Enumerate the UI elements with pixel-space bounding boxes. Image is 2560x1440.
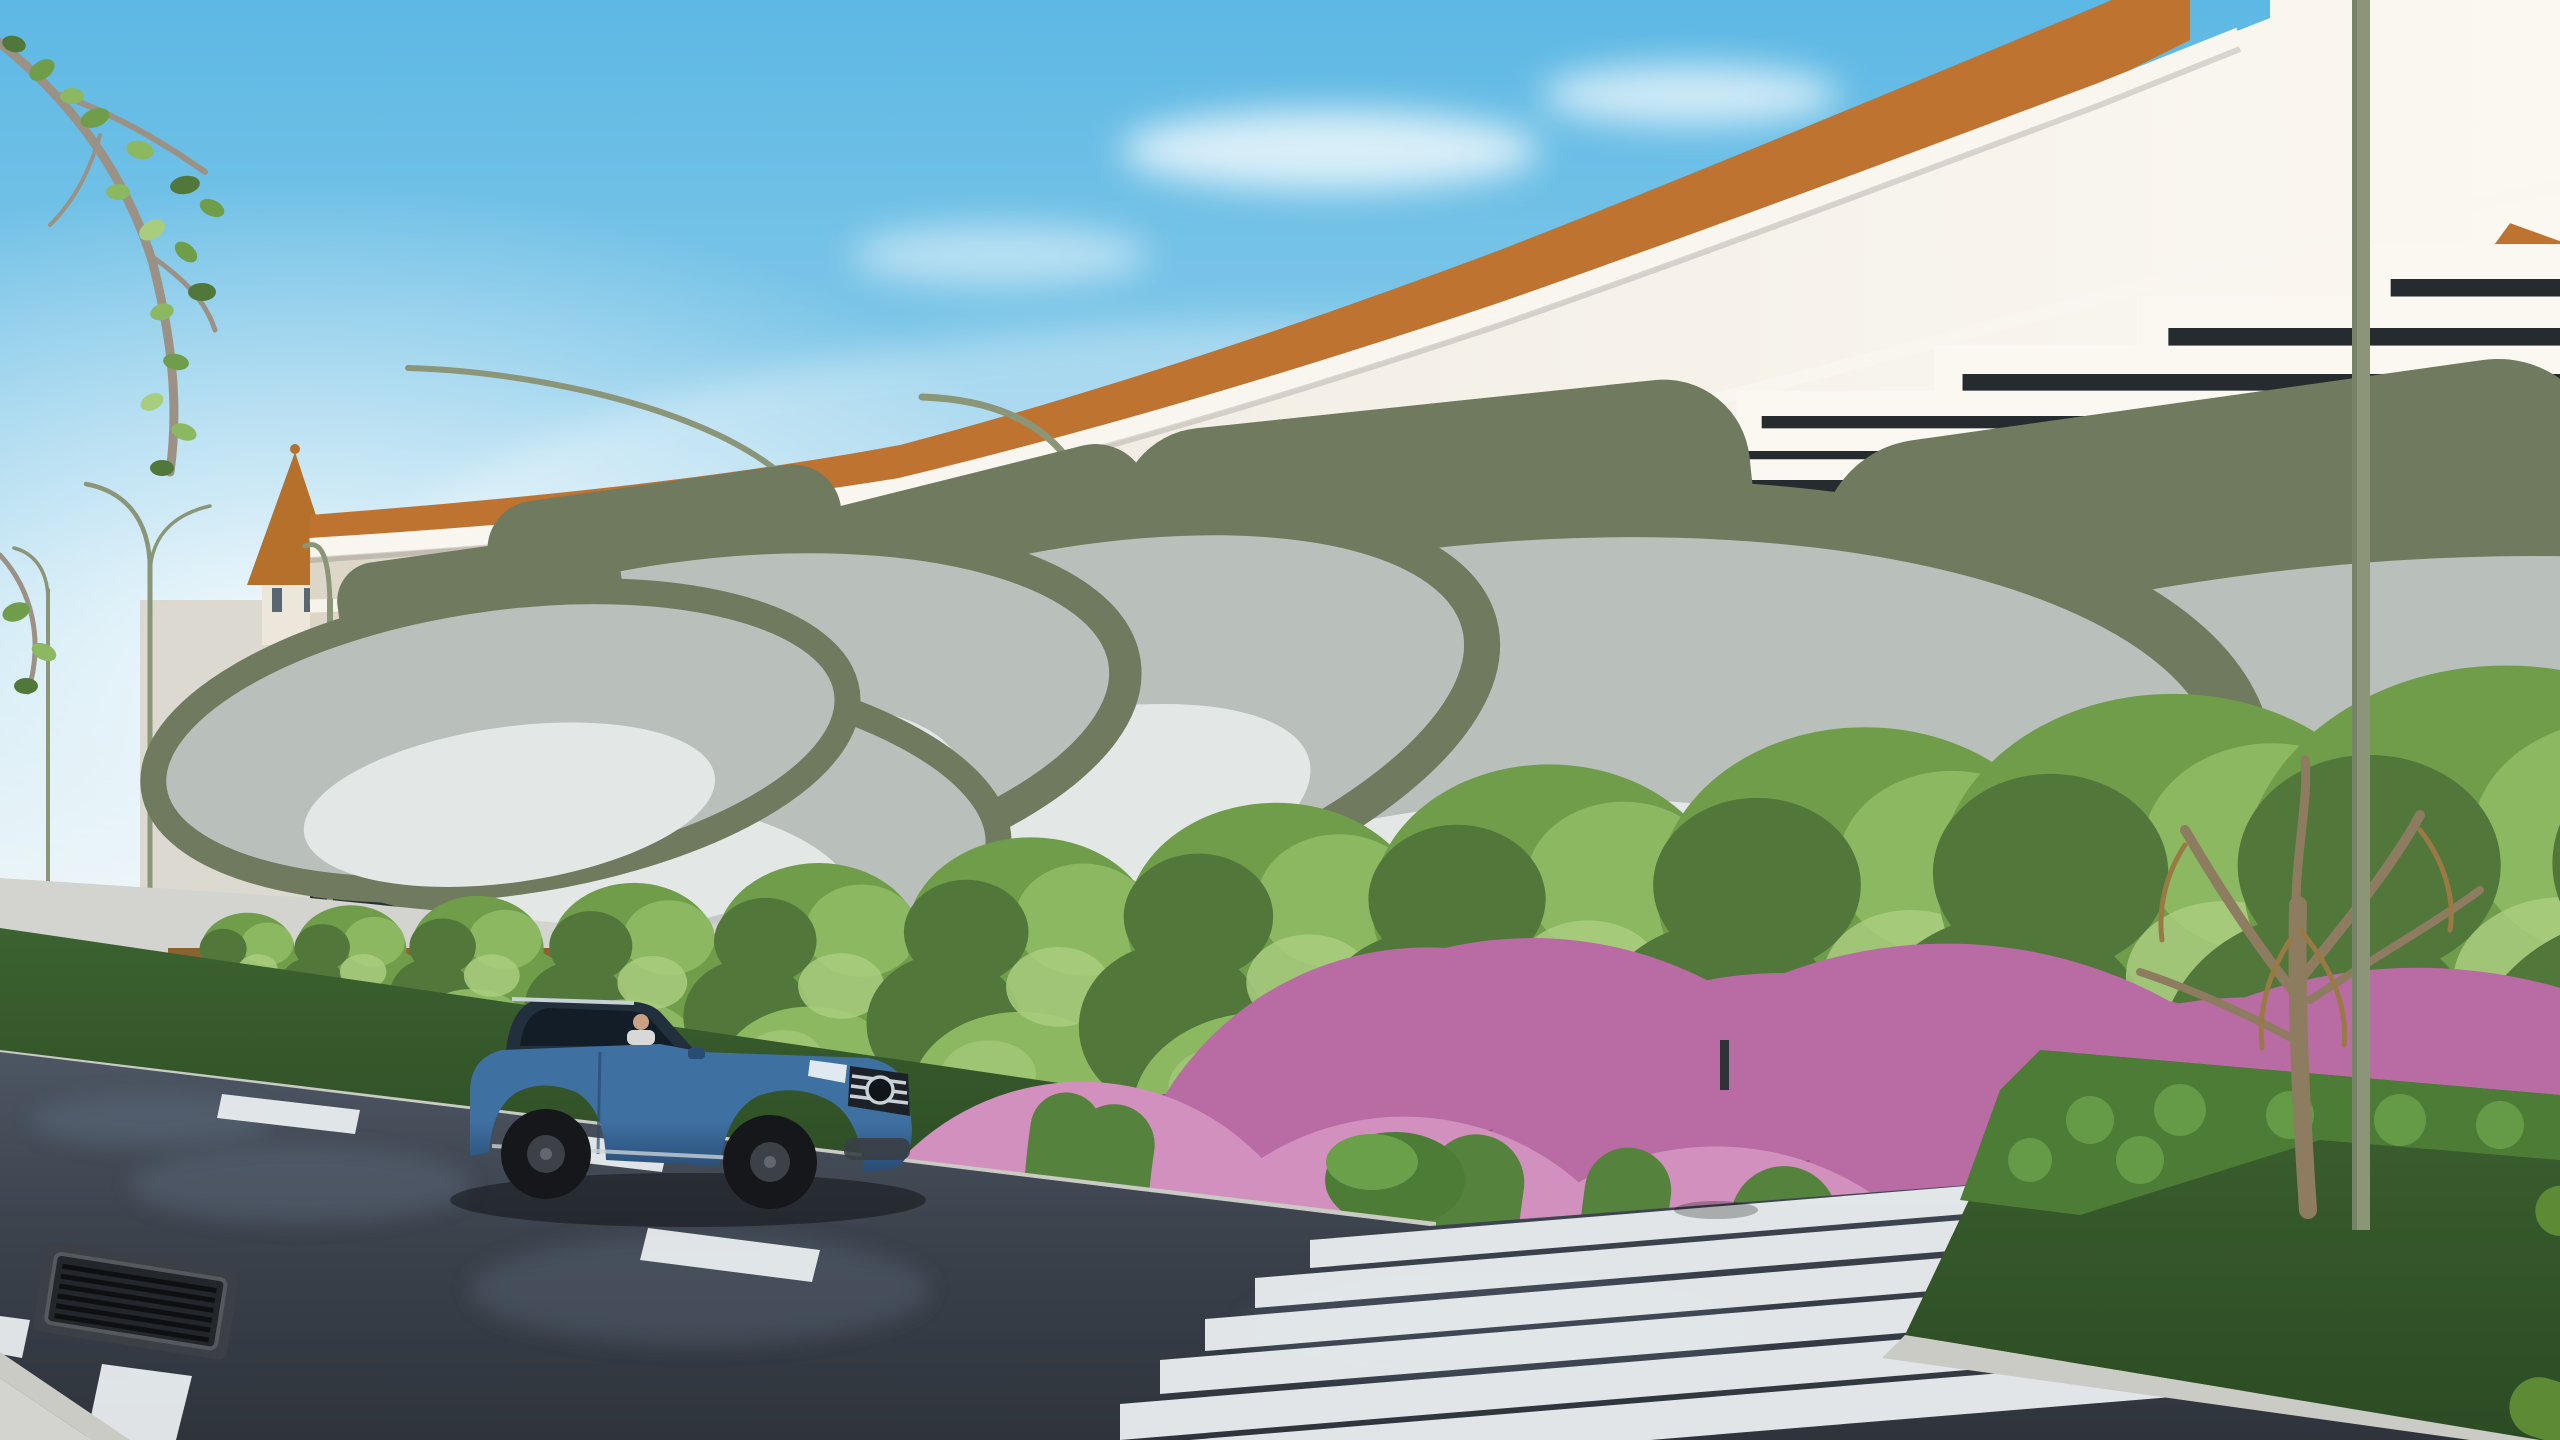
tie — [1720, 1040, 1729, 1090]
rendering-canvas — [0, 0, 2560, 1440]
door-seam — [598, 1052, 600, 1154]
side-mirror — [688, 1048, 705, 1059]
median-end-hedge-top — [1326, 1134, 1418, 1190]
street-scene — [0, 0, 2560, 1440]
front-bumper — [844, 1138, 910, 1160]
